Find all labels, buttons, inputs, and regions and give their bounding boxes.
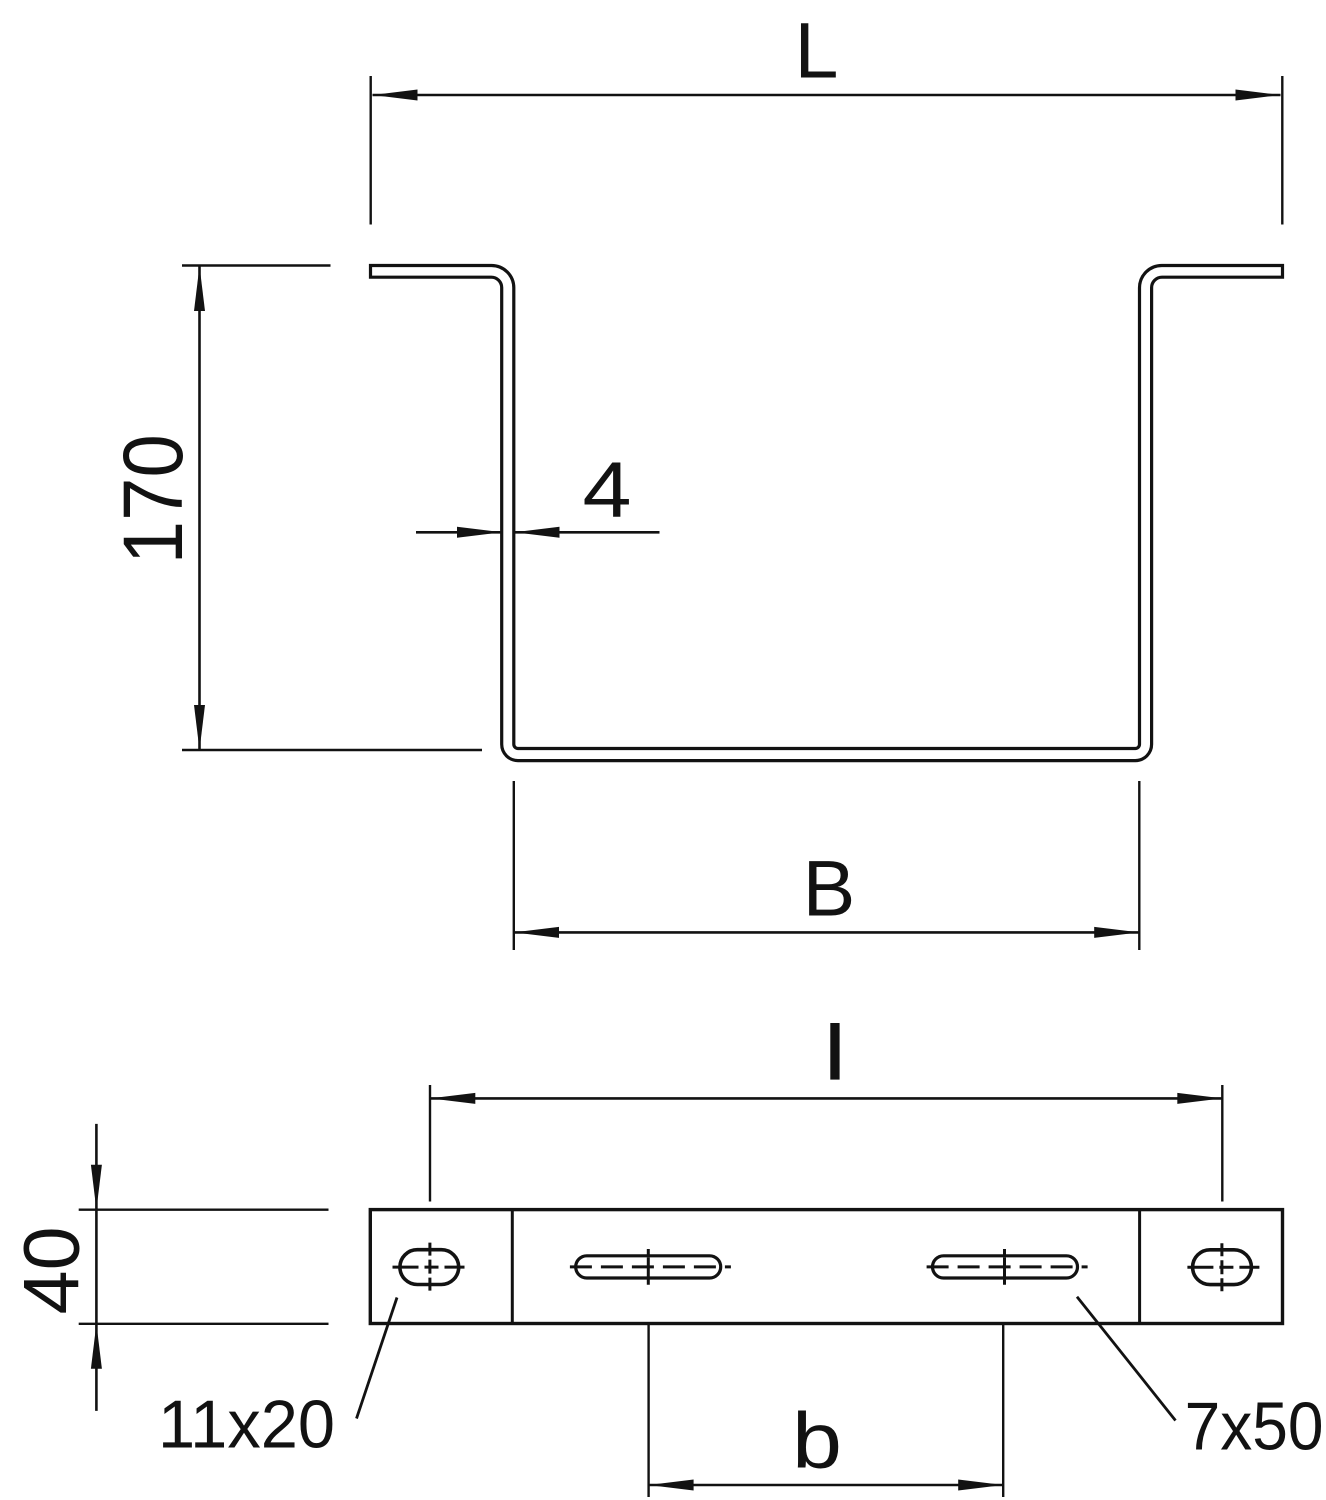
svg-text:170: 170 (106, 434, 200, 564)
svg-text:4: 4 (583, 445, 632, 534)
svg-text:b: b (792, 1396, 842, 1485)
svg-text:B: B (803, 844, 856, 933)
svg-text:L: L (795, 5, 839, 94)
svg-text:11x20: 11x20 (158, 1387, 335, 1463)
svg-text:7x50: 7x50 (1185, 1389, 1324, 1465)
svg-text:40: 40 (7, 1226, 96, 1314)
